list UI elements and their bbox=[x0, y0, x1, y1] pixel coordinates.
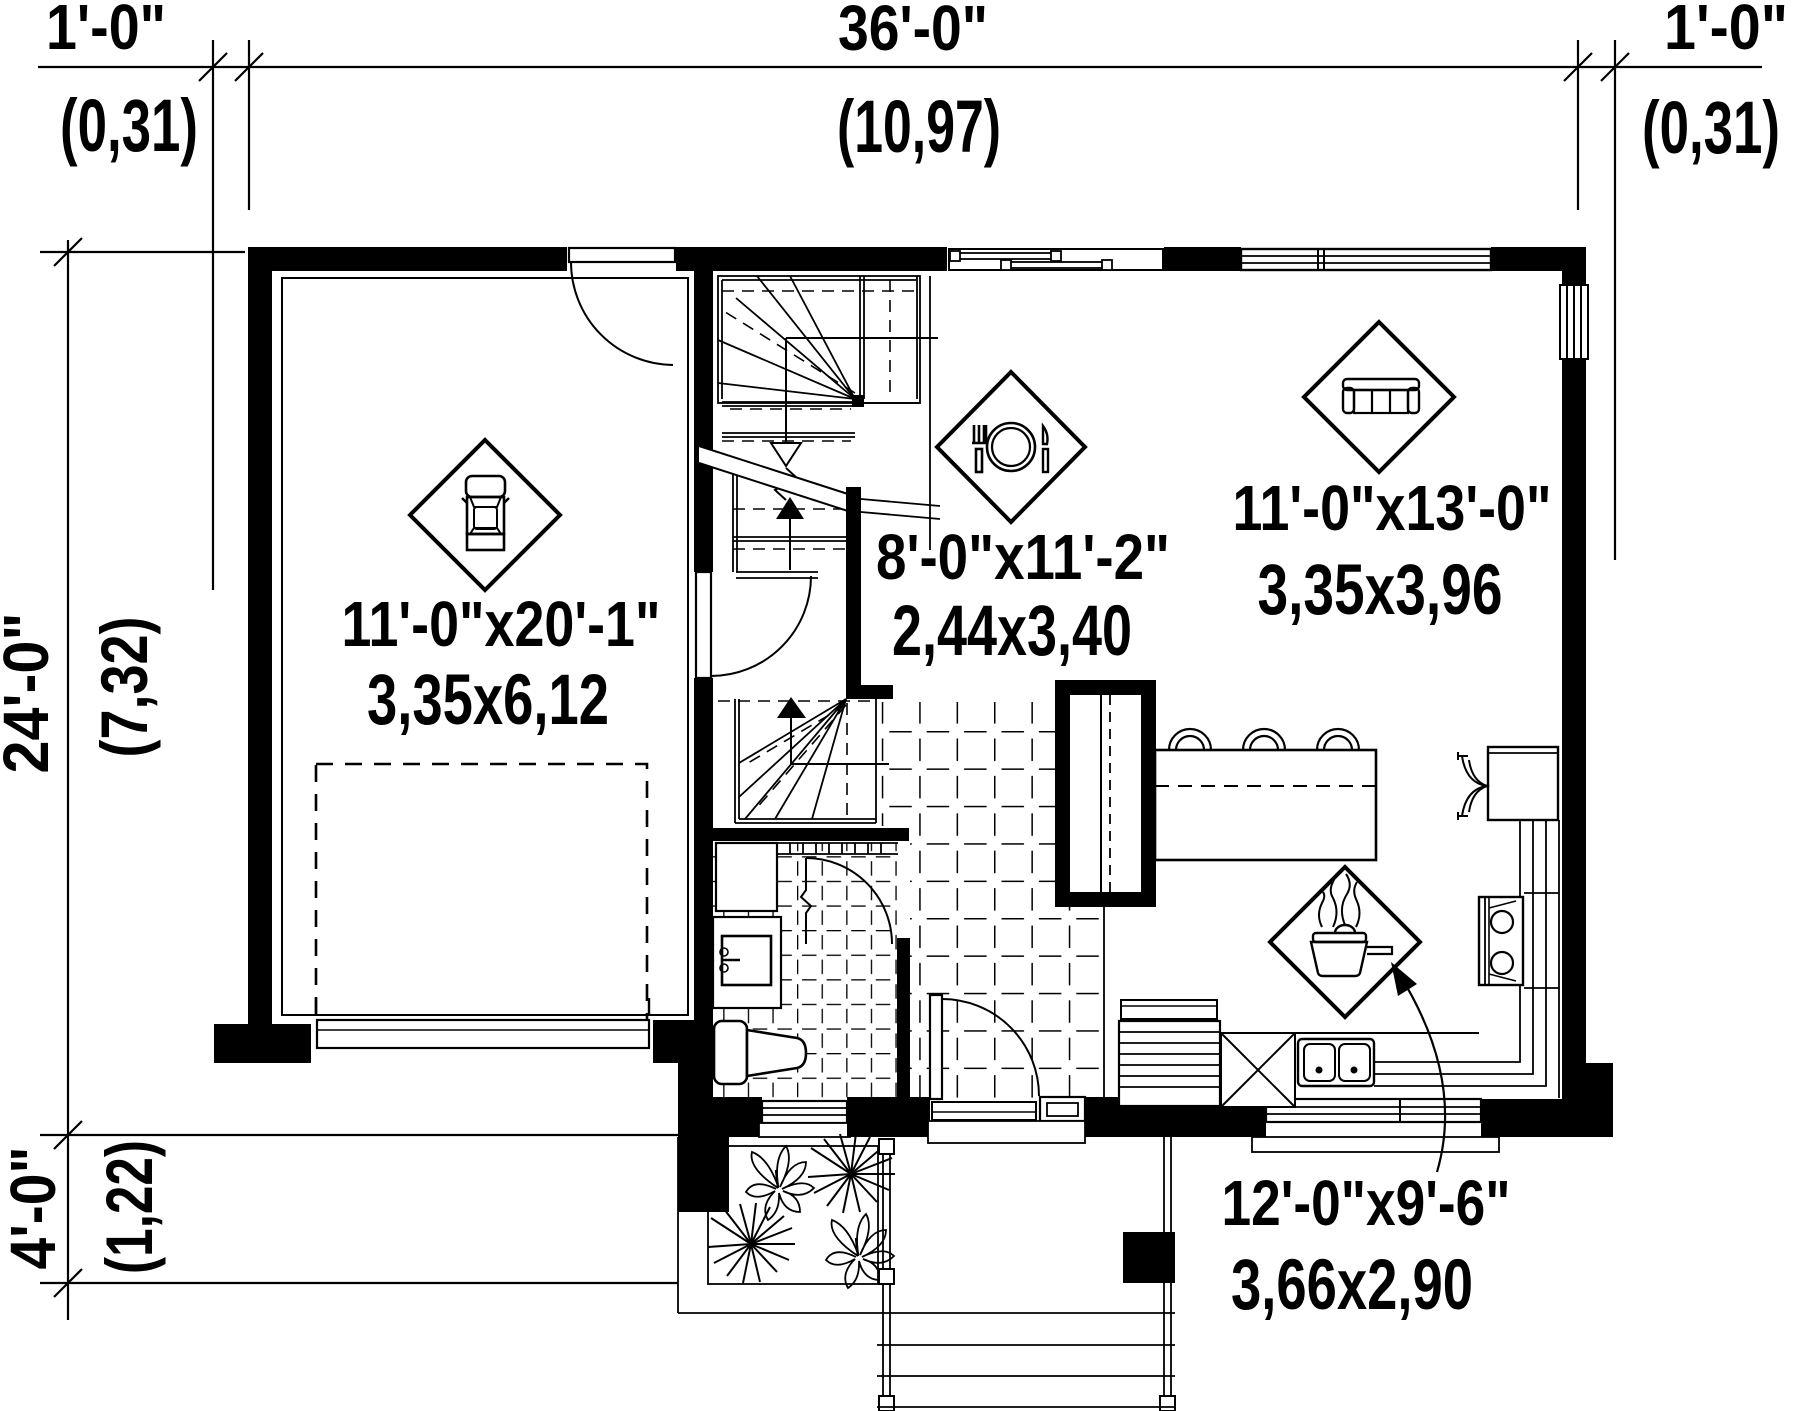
svg-text:(0,31): (0,31) bbox=[60, 84, 198, 167]
svg-text:(7,32): (7,32) bbox=[87, 617, 161, 758]
svg-text:12'-0"x9'-6": 12'-0"x9'-6" bbox=[1222, 1167, 1511, 1239]
svg-text:2,44x3,40: 2,44x3,40 bbox=[892, 592, 1132, 671]
svg-text:3,35x3,96: 3,35x3,96 bbox=[1258, 551, 1503, 630]
svg-text:(1,22): (1,22) bbox=[92, 1140, 166, 1274]
svg-text:1'-0": 1'-0" bbox=[46, 0, 166, 63]
svg-text:8'-0"x11'-2": 8'-0"x11'-2" bbox=[876, 521, 1170, 593]
svg-text:(0,31): (0,31) bbox=[1642, 86, 1780, 169]
svg-text:4'-0": 4'-0" bbox=[0, 1147, 69, 1270]
svg-text:(10,97): (10,97) bbox=[837, 85, 1001, 168]
svg-text:11'-0"x13'-0": 11'-0"x13'-0" bbox=[1233, 472, 1552, 544]
svg-text:11'-0"x20'-1": 11'-0"x20'-1" bbox=[342, 588, 661, 660]
svg-text:3,35x6,12: 3,35x6,12 bbox=[367, 661, 609, 740]
svg-text:1'-0": 1'-0" bbox=[1664, 0, 1788, 63]
svg-text:36'-0": 36'-0" bbox=[838, 0, 988, 64]
svg-text:24'-0": 24'-0" bbox=[0, 613, 62, 774]
svg-text:3,66x2,90: 3,66x2,90 bbox=[1231, 1246, 1473, 1325]
